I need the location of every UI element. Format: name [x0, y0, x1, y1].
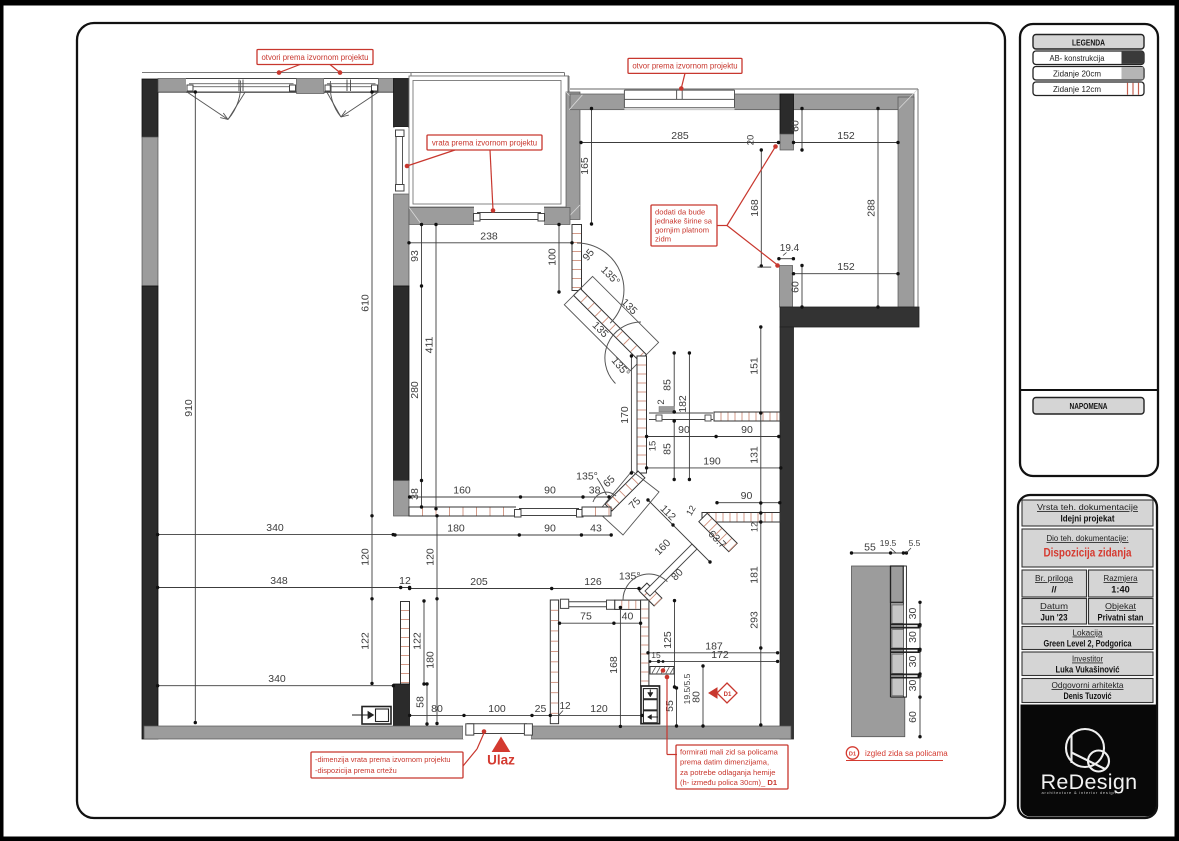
svg-text:238: 238	[480, 230, 498, 242]
svg-text:280: 280	[409, 381, 421, 399]
svg-text:165: 165	[579, 157, 591, 175]
svg-text:formirati mali zid sa policama: formirati mali zid sa policama	[680, 747, 779, 756]
svg-text:90: 90	[544, 485, 556, 497]
svg-text:dodati da bude: dodati da bude	[655, 208, 705, 217]
svg-text:za potrebe odlaganja hemije: za potrebe odlaganja hemije	[680, 768, 775, 777]
svg-text:Lokacija: Lokacija	[1073, 628, 1103, 638]
svg-text:30: 30	[907, 608, 919, 620]
svg-text:NAPOMENA: NAPOMENA	[1070, 401, 1108, 411]
svg-text:152: 152	[837, 261, 855, 273]
svg-text:2: 2	[656, 399, 667, 404]
svg-text:151: 151	[748, 357, 760, 375]
svg-text:12: 12	[749, 522, 759, 532]
svg-text:Ulaz: Ulaz	[487, 753, 515, 768]
svg-text:120: 120	[425, 548, 437, 566]
svg-text:otvor prema izvornom projektu: otvor prema izvornom projektu	[632, 62, 737, 71]
svg-text:285: 285	[671, 130, 689, 142]
svg-text:122: 122	[360, 632, 372, 650]
svg-text:55: 55	[864, 542, 876, 554]
svg-text:vrata prema izvornom projektu: vrata prema izvornom projektu	[432, 138, 537, 147]
svg-text:93: 93	[409, 250, 421, 262]
svg-text:(h- između polica 30cm)_ D1: (h- između polica 30cm)_ D1	[680, 778, 778, 787]
svg-text://: //	[1051, 585, 1057, 595]
svg-text:1:40: 1:40	[1111, 585, 1129, 595]
svg-text:Razmjera: Razmjera	[1104, 573, 1138, 583]
svg-text:181: 181	[748, 566, 760, 584]
svg-text:Zidanje 12cm: Zidanje 12cm	[1053, 85, 1101, 94]
svg-text:126: 126	[584, 576, 602, 588]
svg-text:5.5: 5.5	[909, 538, 921, 548]
svg-text:Luka Vukašinović: Luka Vukašinović	[1056, 665, 1120, 675]
svg-text:Zidanje 20cm: Zidanje 20cm	[1053, 69, 1101, 78]
svg-text:architecture & interior design: architecture & interior design	[1042, 790, 1117, 795]
svg-text:15: 15	[648, 441, 659, 452]
svg-text:40: 40	[622, 611, 634, 623]
svg-text:LEGENDA: LEGENDA	[1072, 38, 1105, 48]
svg-text:80: 80	[691, 691, 703, 703]
svg-text:Investitor: Investitor	[1072, 654, 1103, 664]
svg-text:180: 180	[447, 523, 465, 535]
svg-text:170: 170	[619, 406, 631, 424]
svg-text:60: 60	[790, 120, 802, 132]
svg-text:Idejni projekat: Idejni projekat	[1061, 514, 1115, 524]
svg-text:12: 12	[559, 701, 571, 712]
svg-text:60: 60	[790, 281, 802, 293]
svg-text:85: 85	[662, 443, 674, 455]
svg-text:zidm: zidm	[655, 235, 671, 244]
svg-text:19.5/5.5: 19.5/5.5	[682, 673, 692, 704]
svg-text:19.4: 19.4	[780, 243, 800, 254]
svg-text:60: 60	[907, 711, 919, 723]
svg-text:120: 120	[360, 548, 372, 566]
svg-text:190: 190	[703, 455, 721, 467]
svg-text:gornjim platnom: gornjim platnom	[655, 226, 709, 235]
svg-text:-dimenzija vrata prema izvorno: -dimenzija vrata prema izvornom projektu	[315, 755, 451, 764]
svg-text:Br. priloga: Br. priloga	[1035, 573, 1073, 583]
svg-text:20: 20	[746, 135, 757, 146]
svg-text:otvori prema izvornom projektu: otvori prema izvornom projektu	[261, 53, 368, 62]
svg-text:25: 25	[535, 703, 547, 715]
svg-text:90: 90	[544, 523, 556, 535]
svg-text:100: 100	[547, 248, 559, 266]
svg-text:348: 348	[270, 575, 288, 587]
svg-text:85: 85	[662, 379, 674, 391]
svg-text:182: 182	[677, 395, 689, 413]
svg-text:Objekat: Objekat	[1105, 601, 1137, 611]
svg-text:100: 100	[488, 703, 506, 715]
svg-text:jednake širine sa: jednake širine sa	[654, 217, 713, 226]
svg-text:Denis Tuzović: Denis Tuzović	[1064, 691, 1112, 701]
svg-text:340: 340	[266, 522, 284, 534]
svg-text:30: 30	[907, 631, 919, 643]
svg-text:43: 43	[590, 523, 602, 535]
svg-text:Datum: Datum	[1040, 601, 1068, 611]
svg-text:610: 610	[360, 294, 372, 312]
svg-text:75: 75	[580, 611, 592, 623]
svg-text:152: 152	[837, 130, 855, 142]
svg-text:411: 411	[424, 336, 436, 353]
svg-text:288: 288	[866, 199, 878, 217]
svg-text:168: 168	[749, 199, 761, 217]
svg-text:168: 168	[608, 656, 620, 674]
svg-text:-dispozicija prema crtežu: -dispozicija prema crtežu	[315, 766, 397, 775]
svg-text:205: 205	[470, 576, 488, 588]
svg-text:izgled zida sa policama: izgled zida sa policama	[865, 749, 948, 758]
svg-text:Dio teh. dokumentacije:: Dio teh. dokumentacije:	[1047, 533, 1129, 543]
svg-text:160: 160	[453, 485, 471, 497]
svg-text:Privatni stan: Privatni stan	[1098, 613, 1144, 623]
svg-text:135°: 135°	[576, 471, 598, 483]
svg-text:90: 90	[741, 490, 753, 502]
svg-text:80: 80	[431, 703, 443, 715]
svg-text:Vrsta teh. dokumentacije: Vrsta teh. dokumentacije	[1037, 502, 1138, 512]
svg-text:340: 340	[268, 673, 286, 685]
svg-text:15: 15	[651, 650, 661, 660]
svg-text:293: 293	[748, 611, 760, 629]
svg-text:Odgovorni arhitekta: Odgovorni arhitekta	[1052, 680, 1124, 690]
svg-text:120: 120	[590, 703, 608, 715]
svg-text:30: 30	[907, 656, 919, 668]
svg-text:30: 30	[907, 680, 919, 692]
svg-text:125: 125	[662, 631, 674, 649]
svg-text:D1: D1	[724, 692, 732, 698]
svg-text:58: 58	[415, 696, 427, 708]
svg-text:12: 12	[399, 575, 411, 587]
svg-text:122: 122	[412, 632, 424, 650]
svg-text:910: 910	[183, 399, 195, 417]
svg-text:AB- konstrukcija: AB- konstrukcija	[1050, 54, 1106, 63]
svg-text:prema datim dimenzijama,: prema datim dimenzijama,	[680, 758, 769, 767]
svg-text:131: 131	[748, 446, 760, 464]
svg-text:Green Level 2, Podgorica: Green Level 2, Podgorica	[1044, 639, 1133, 649]
svg-text:D1: D1	[849, 751, 856, 757]
svg-text:Dispozicija zidanja: Dispozicija zidanja	[1044, 546, 1132, 560]
svg-text:180: 180	[425, 651, 437, 669]
svg-text:172: 172	[711, 649, 729, 661]
svg-text:Jun '23: Jun '23	[1041, 613, 1068, 623]
svg-text:90: 90	[741, 424, 753, 436]
svg-text:19.5: 19.5	[880, 538, 897, 548]
svg-text:55: 55	[664, 700, 676, 712]
svg-text:90: 90	[678, 424, 690, 436]
